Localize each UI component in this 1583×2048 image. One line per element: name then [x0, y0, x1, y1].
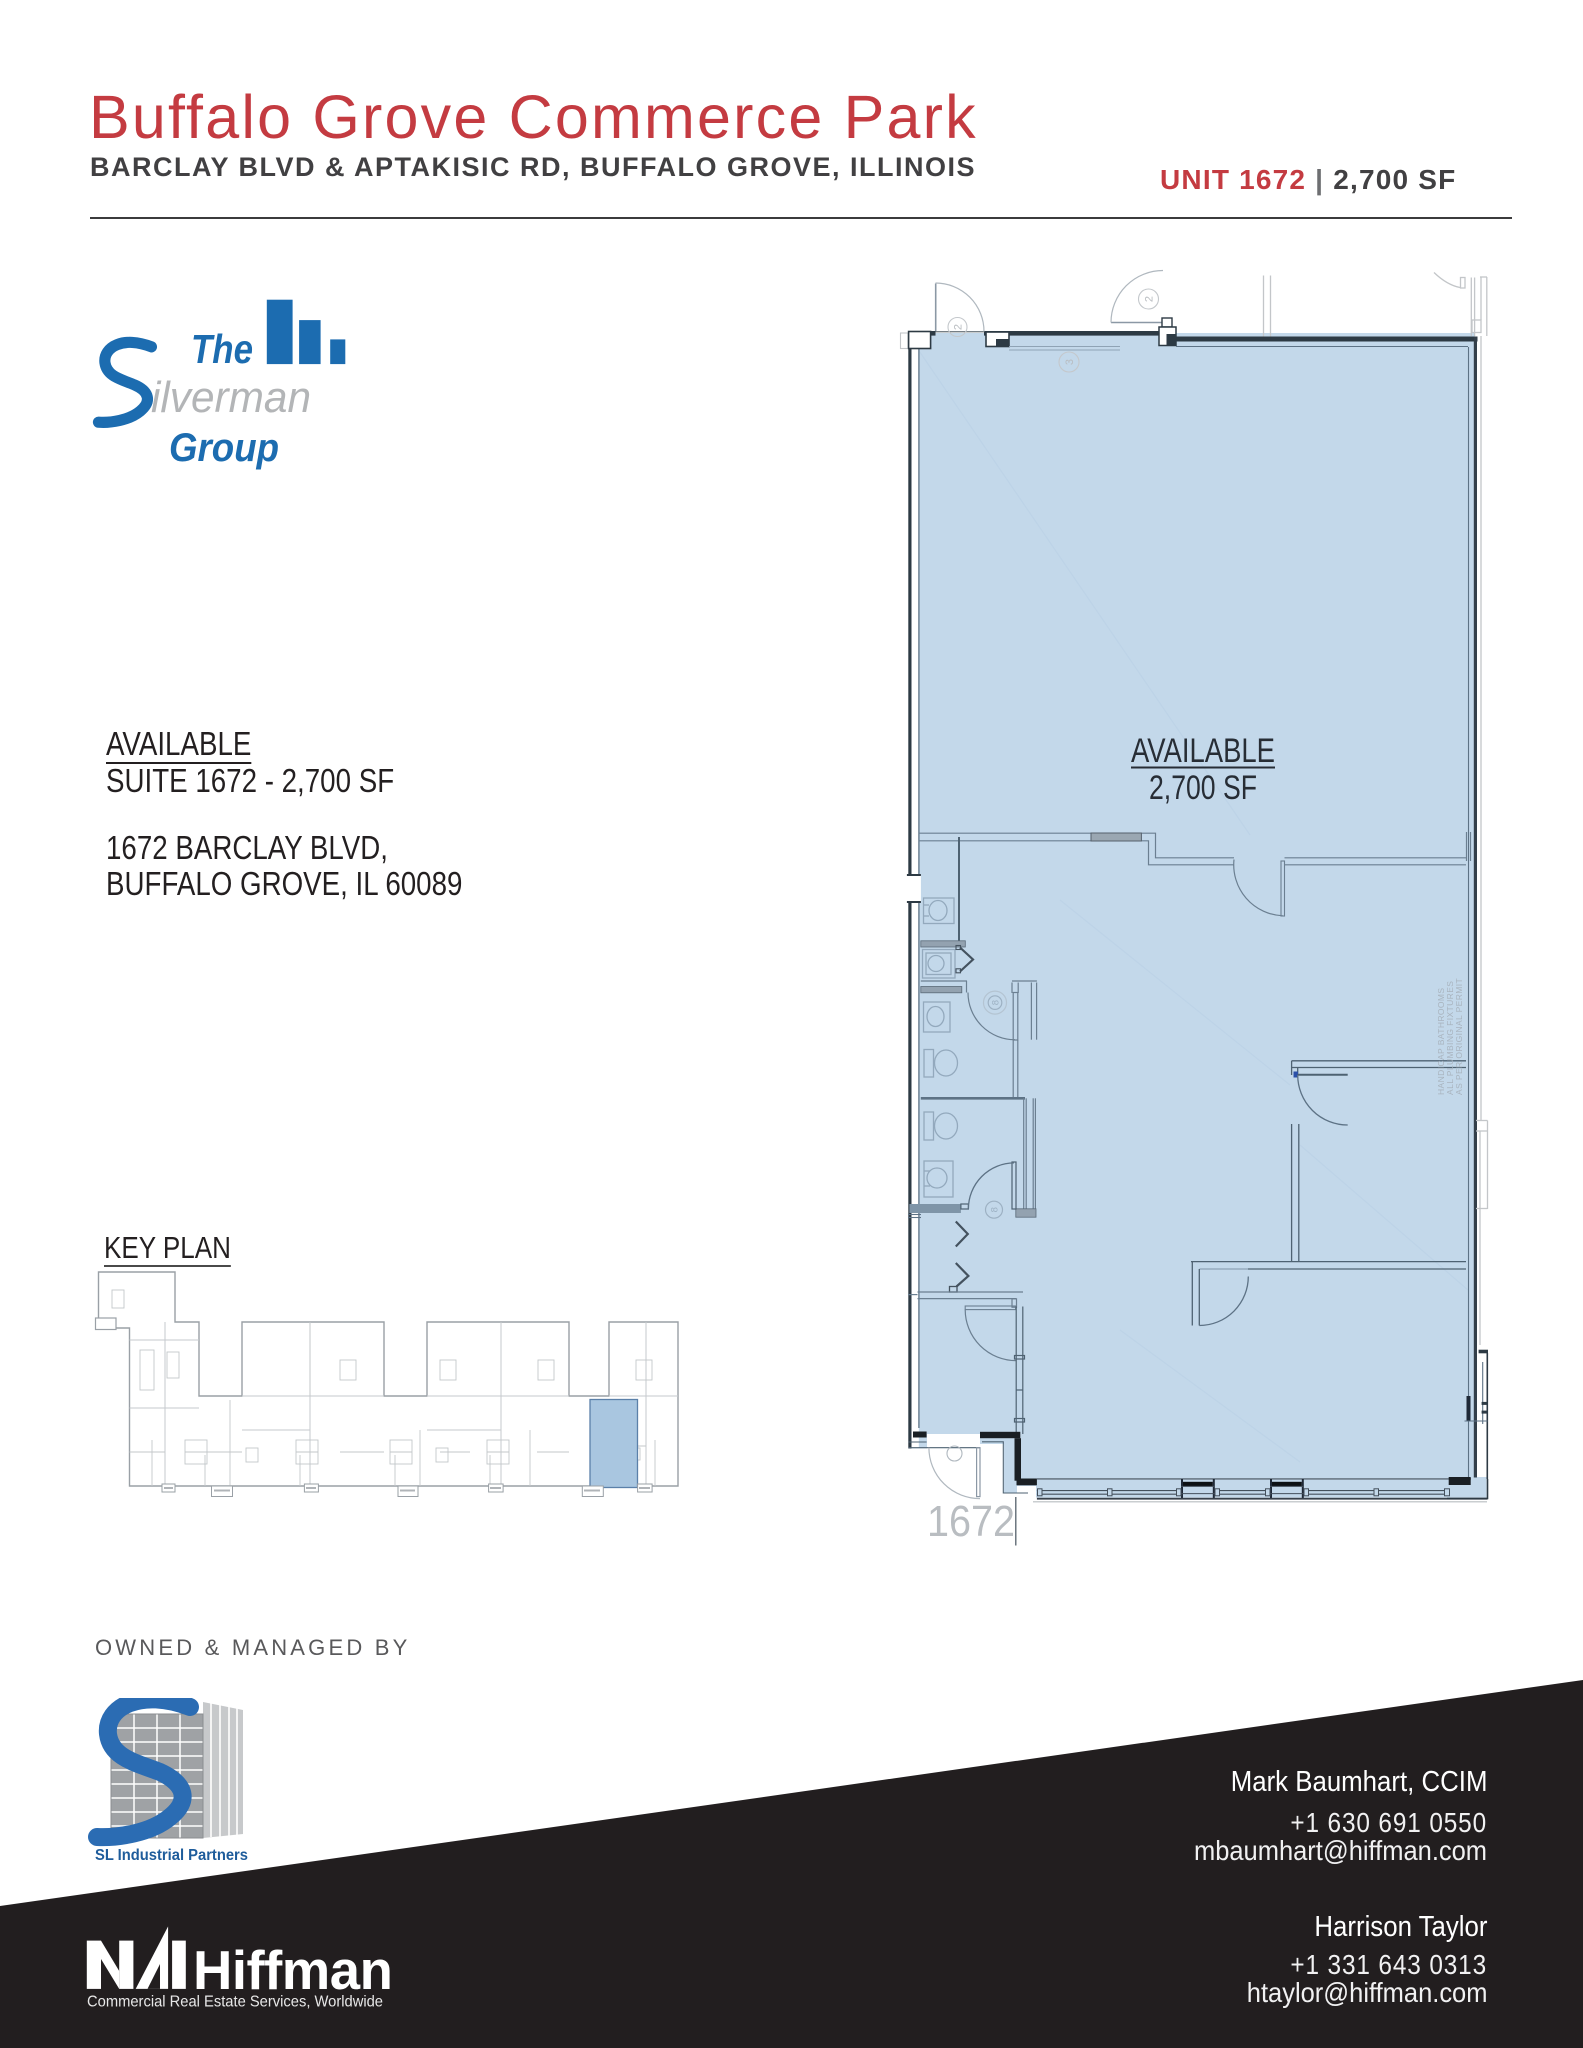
svg-text:8: 8: [990, 1000, 1001, 1005]
svg-text:Group: Group: [169, 426, 279, 470]
svg-text:AS PER ORIGINAL PERMIT: AS PER ORIGINAL PERMIT: [1454, 978, 1464, 1095]
svg-text:8: 8: [989, 1207, 1000, 1212]
svg-text:Commercial Real Estate Service: Commercial Real Estate Services, Worldwi…: [87, 1994, 383, 2011]
svg-text:The: The: [191, 326, 253, 372]
svg-text:Hiffman: Hiffman: [193, 1940, 392, 2001]
svg-text:1672: 1672: [927, 1497, 1015, 1546]
svg-text:2,700 SF: 2,700 SF: [1149, 769, 1257, 807]
svg-text:ilverman: ilverman: [151, 373, 311, 422]
svg-text:2: 2: [953, 324, 965, 330]
svg-text:AVAILABLE: AVAILABLE: [1131, 732, 1275, 770]
svg-text:3: 3: [1064, 359, 1076, 365]
svg-text:SL Industrial Partners: SL Industrial Partners: [95, 1847, 248, 1864]
svg-text:2: 2: [1144, 296, 1156, 302]
